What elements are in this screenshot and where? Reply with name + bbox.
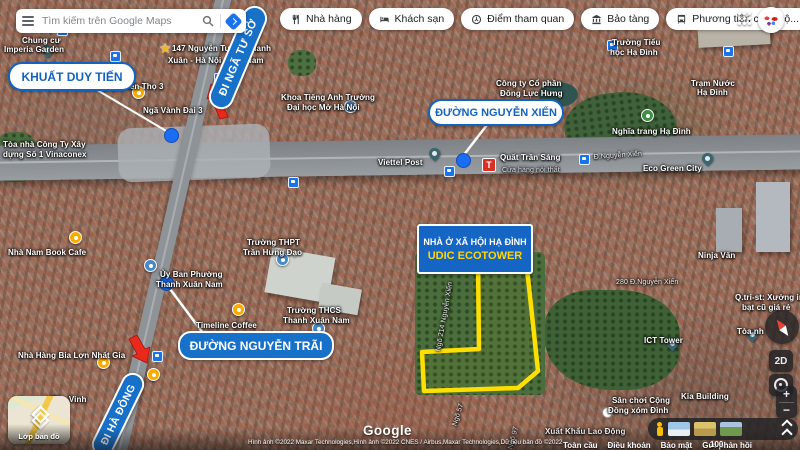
map-label: Trần Hưng Đạo	[243, 248, 302, 257]
food-poi-icon[interactable]	[232, 303, 245, 316]
museum-icon	[591, 14, 602, 25]
hotel-icon	[379, 14, 390, 25]
map-label: Thanh Xuân Nam	[156, 280, 223, 289]
attraction-icon	[471, 14, 482, 25]
layers-label: Lớp bản đồ	[8, 432, 70, 441]
search-icon[interactable]	[202, 15, 214, 27]
map-label: Chung cư	[22, 36, 61, 45]
transit-stop-icon[interactable]	[723, 46, 734, 57]
imagery-bar	[648, 418, 798, 440]
map-label: học Hạ Đình	[610, 48, 658, 57]
map-label: Tòa nhà Công Ty Xây	[3, 140, 86, 149]
footer-link[interactable]: Bảo mật	[661, 441, 693, 450]
map-label: 280 Đ.Nguyễn Xiển	[616, 279, 678, 286]
menu-icon[interactable]	[22, 16, 34, 26]
map-label: Timeline Coffee	[196, 321, 257, 330]
map-label: Nghĩa trang Hạ Đình	[612, 127, 691, 136]
map-label: Viettel Post	[378, 158, 423, 167]
annotation-khuat-duy-tien: KHUẤT DUY TIẾN	[8, 62, 136, 91]
map-label: Q.tri-st: Xưởng in	[735, 293, 800, 302]
map-label: Đồng xóm Đình	[608, 406, 668, 415]
google-apps-icon[interactable]	[738, 12, 751, 25]
saved-place-star-icon[interactable]: ★	[159, 41, 172, 55]
map-attribution: Hình ảnh ©2022 Maxar Technologies,Hình ả…	[248, 439, 562, 446]
map-label: Đại học Mở Hà Nội	[287, 103, 360, 112]
compass-needle-icon	[774, 317, 786, 330]
account-avatar[interactable]	[758, 7, 784, 33]
map-label: Công ty Cổ phần	[496, 79, 562, 88]
scale-label: 100 mét	[710, 440, 739, 450]
red-arrow-down-icon	[129, 335, 150, 363]
annotation-udic-ecotower: NHÀ Ở XÃ HỘI HẠ ĐÌNH UDIC ECOTOWER	[417, 224, 533, 274]
map-label: Trường Tiểu	[612, 38, 660, 47]
annotation-duong-nguyen-xien: ĐƯỜNG NGUYỄN XIỂN	[428, 99, 564, 126]
zoom-control: + −	[776, 386, 797, 418]
map-label: Ninja Văn	[698, 251, 735, 260]
chip-label: Khách sạn	[395, 13, 445, 25]
map-label: Kia Building	[681, 392, 729, 401]
food-poi-icon[interactable]	[69, 231, 82, 244]
map-label: Imperia Garden	[4, 45, 64, 54]
map-label: Nhà Nam Book Cafe	[8, 248, 86, 257]
transit-stop-icon[interactable]	[152, 351, 163, 362]
map-label: Khoa Tiếng Anh Trường	[281, 93, 375, 102]
compass-control[interactable]	[765, 310, 799, 344]
map-label: Thanh Xuân Nam	[283, 316, 350, 325]
road-point-marker	[164, 128, 179, 143]
park-poi-icon[interactable]	[641, 109, 654, 122]
chip-label: Điểm tham quan	[487, 13, 564, 25]
map-label: Cửa hàng nội thất	[502, 167, 560, 174]
map-label: Tòa nh	[737, 327, 764, 336]
imagery-thumbnail[interactable]	[668, 422, 690, 436]
map-scale: 100 mét	[710, 440, 800, 450]
map-label: Trường THCS	[287, 306, 341, 315]
store-poi-icon[interactable]: T	[482, 158, 496, 172]
footer-link[interactable]: Điều khoản	[608, 441, 651, 450]
collapse-chevron-icon[interactable]	[783, 421, 791, 438]
transit-stop-icon[interactable]	[579, 154, 590, 165]
pegman-icon[interactable]	[655, 422, 664, 437]
footer-link[interactable]: Toàn cầu	[563, 441, 598, 450]
transit-icon	[676, 14, 687, 25]
map-label: Eco Green City	[643, 164, 702, 173]
zoom-out-button[interactable]: −	[776, 403, 797, 419]
map-label: Hạ Đình	[697, 88, 728, 97]
category-chip-1[interactable]: Nhà hàng	[280, 8, 362, 30]
imagery-thumbnail[interactable]	[720, 422, 742, 436]
map-label: Trạm Nước	[691, 79, 735, 88]
map-label: Quất Trần Sáng	[500, 153, 561, 162]
restaurant-icon	[290, 14, 301, 25]
annotation-duong-nguyen-trai: ĐƯỜNG NGUYỄN TRÃI	[178, 331, 334, 360]
search-input[interactable]	[40, 14, 196, 28]
annotation-text: KHUẤT DUY TIẾN	[21, 70, 122, 84]
school-poi-icon[interactable]	[144, 259, 157, 272]
map-label: Ngã Vành Đai 3	[143, 106, 203, 115]
category-chips: Nhà hàngKhách sạnĐiểm tham quanBảo tàngP…	[280, 8, 800, 30]
food-poi-icon[interactable]	[147, 368, 160, 381]
map-label: Nhà Hàng Bia Lợn Nhất Gia	[18, 351, 125, 360]
map-label: Xuất Khẩu Lao Động	[545, 427, 625, 436]
annotation-text: ĐƯỜNG NGUYỄN TRÃI	[190, 339, 323, 353]
transit-stop-icon[interactable]	[288, 177, 299, 188]
annotation-text: ĐƯỜNG NGUYỄN XIỂN	[435, 107, 557, 119]
map-label: Đồng Lực Hưng	[500, 89, 563, 98]
chip-label: Nhà hàng	[306, 13, 352, 25]
avatar-image	[761, 10, 781, 30]
category-chip-2[interactable]: Khách sạn	[369, 8, 455, 30]
google-logo: Google	[363, 423, 412, 438]
leader-line-nguyen-xien	[463, 121, 490, 156]
map-label: ICT Tower	[644, 336, 683, 345]
transit-stop-icon[interactable]	[444, 166, 455, 177]
annotation-text: NHÀ Ở XÃ HỘI HẠ ĐÌNH	[423, 237, 526, 247]
map-label: Trường THPT	[247, 238, 300, 247]
map-label: dựng Số 1 Vinaconex	[3, 150, 87, 159]
road-point-marker	[456, 153, 471, 168]
google-maps-window: Chung cưImperia GardenNhà sách Tiến Thọ …	[0, 0, 800, 450]
annotation-text: UDIC ECOTOWER	[428, 250, 523, 262]
divider	[220, 14, 221, 28]
imagery-thumbnail[interactable]	[694, 422, 716, 436]
directions-icon[interactable]	[224, 12, 242, 30]
category-chip-4[interactable]: Bảo tàng	[581, 8, 659, 30]
search-bar	[16, 9, 246, 33]
map-layers-button[interactable]: Lớp bản đồ	[8, 396, 70, 444]
zoom-in-button[interactable]: +	[776, 386, 797, 402]
category-chip-3[interactable]: Điểm tham quan	[461, 8, 574, 30]
chip-label: Bảo tàng	[607, 13, 649, 25]
map-label: Ủy Ban Phường	[160, 270, 223, 279]
map-label: Sân chơi Cộng	[612, 396, 670, 405]
transit-stop-icon[interactable]	[110, 51, 121, 62]
2d-toggle-button[interactable]: 2D	[769, 350, 793, 372]
